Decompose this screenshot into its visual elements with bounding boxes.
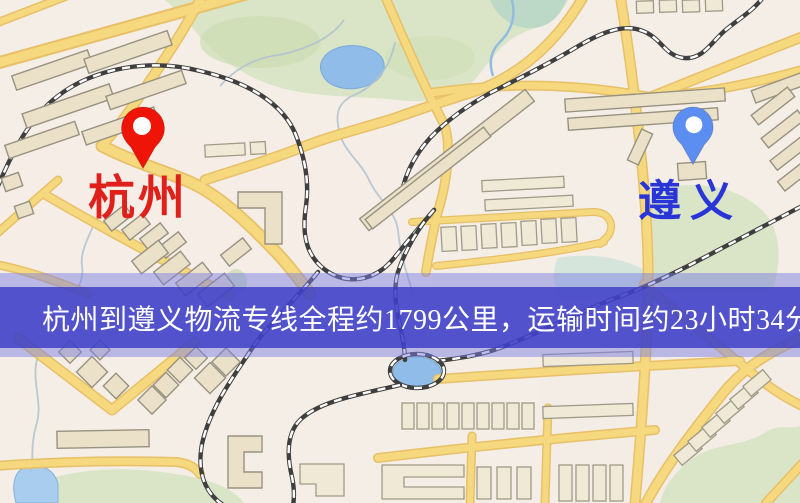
info-banner-band: 杭州到遵义物流专线全程约1799公里，运输时间约23小时34分钟. (0, 287, 800, 348)
info-banner: 杭州到遵义物流专线全程约1799公里，运输时间约23小时34分钟. (0, 273, 800, 357)
map-pin-icon (120, 106, 166, 170)
logistics-map-image: 杭州 遵义 杭州到遵义物流专线全程约1799公里，运输时间约23小时34分钟. (0, 0, 800, 503)
destination-marker (671, 106, 715, 166)
map-background (0, 0, 800, 503)
banner-text: 杭州到遵义物流专线全程约1799公里，运输时间约23小时34分钟. (0, 298, 800, 338)
origin-label: 杭州 (88, 176, 188, 223)
map-pin-icon (671, 106, 715, 166)
destination-label: 遵义 (638, 181, 742, 224)
origin-marker (120, 106, 166, 170)
